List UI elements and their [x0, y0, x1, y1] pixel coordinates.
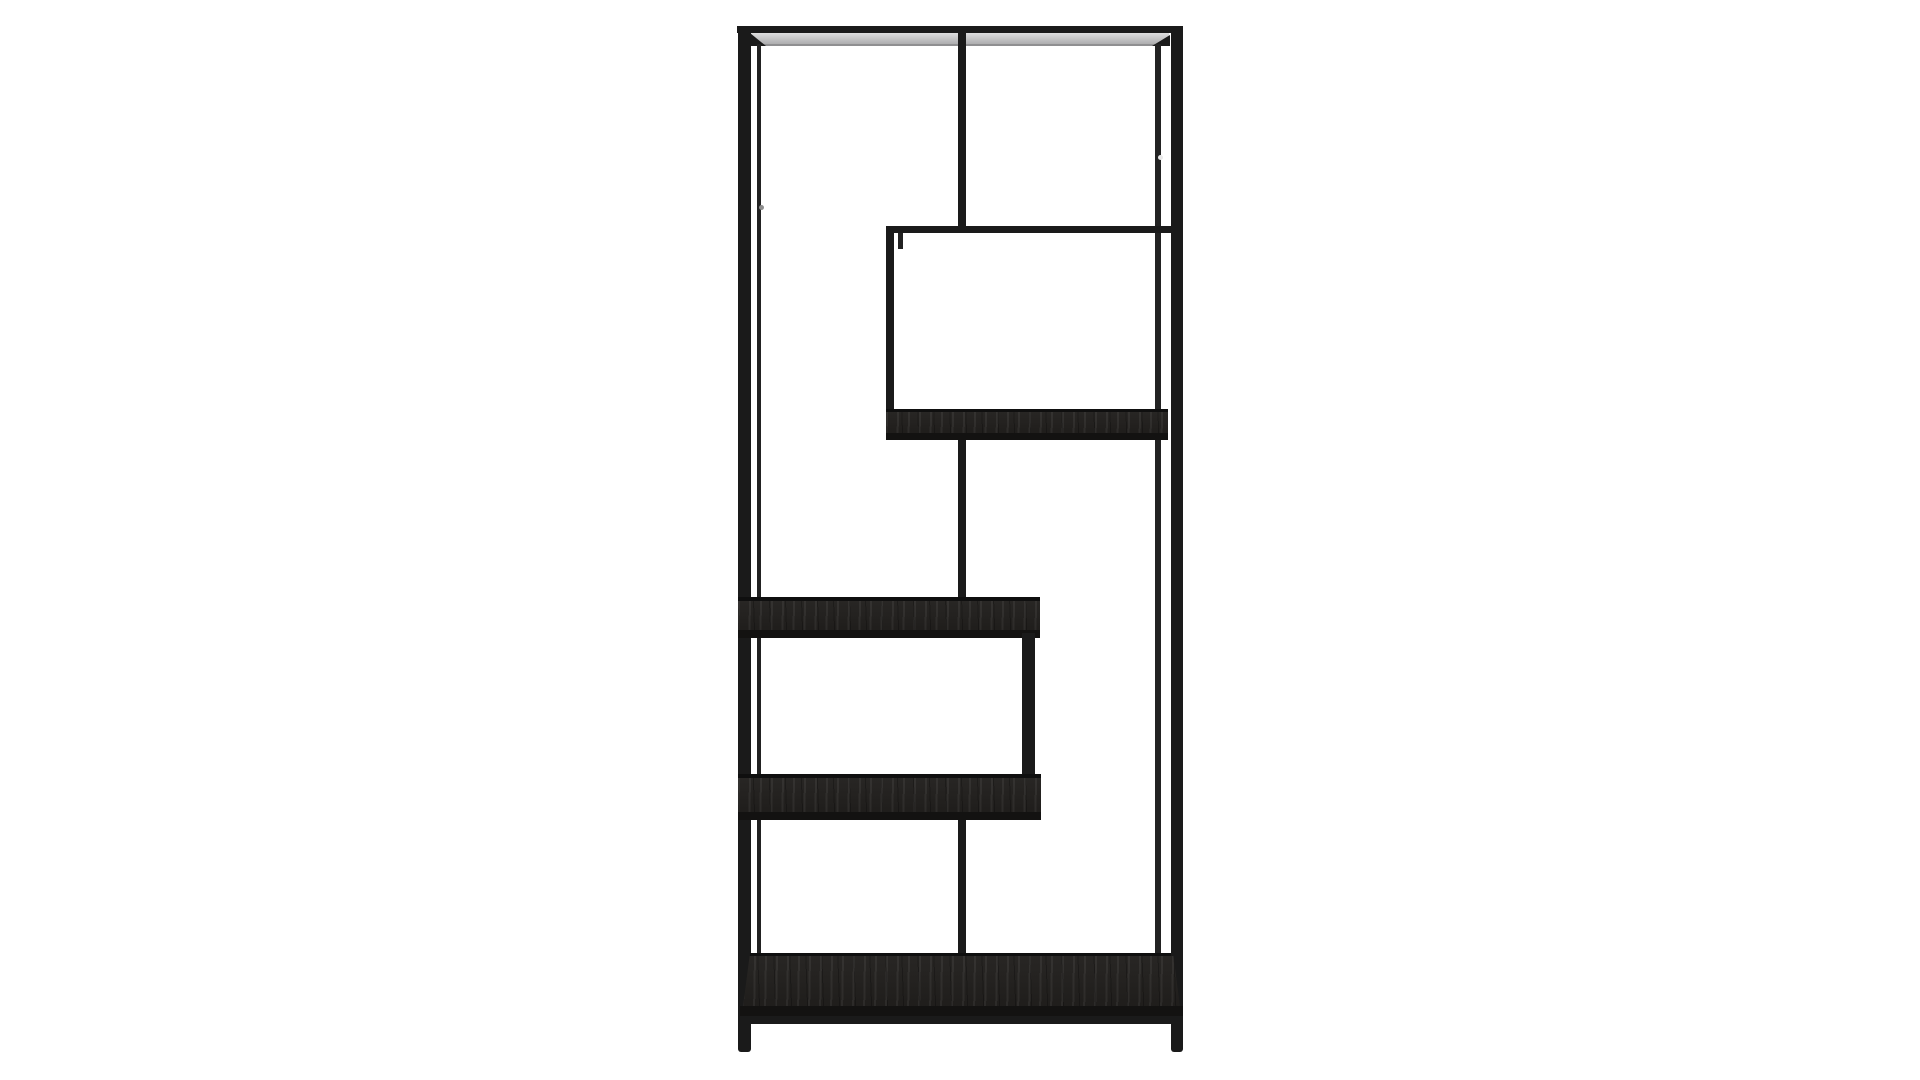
- left-post: [738, 26, 751, 1052]
- top-rail: [737, 26, 1183, 33]
- bottom-shelf-surface: [743, 956, 1180, 1006]
- upper-box-left-edge: [886, 226, 894, 440]
- product-photo: [0, 0, 1920, 1080]
- lower-box-shelf-surface: [738, 778, 1041, 812]
- lower-box-right-wall: [1022, 633, 1035, 777]
- center-divider-upper: [958, 33, 966, 226]
- center-divider-middle: [958, 440, 966, 601]
- middle-shelf-surface: [738, 601, 1040, 630]
- bottom-shelf-back-line: [750, 953, 1171, 956]
- middle-shelf-front-edge: [738, 630, 1040, 638]
- right-post-screw-dot: [1158, 155, 1163, 160]
- bookshelf: [0, 0, 1920, 1080]
- lower-box-shelf-front-edge: [738, 812, 1041, 820]
- bottom-shelf-front-edge: [740, 1006, 1183, 1016]
- upper-box-shelf-surface: [886, 412, 1168, 433]
- left-post-screw-dot: [759, 205, 764, 210]
- upper-box-left-back-stub: [898, 233, 903, 249]
- center-divider-lower: [958, 820, 966, 956]
- upper-box-top-rail: [886, 226, 1183, 233]
- upper-box-shelf-front-edge: [886, 433, 1168, 440]
- bottom-front-rail: [738, 1016, 1183, 1024]
- right-post: [1171, 26, 1183, 1052]
- right-front-post: [1155, 44, 1161, 956]
